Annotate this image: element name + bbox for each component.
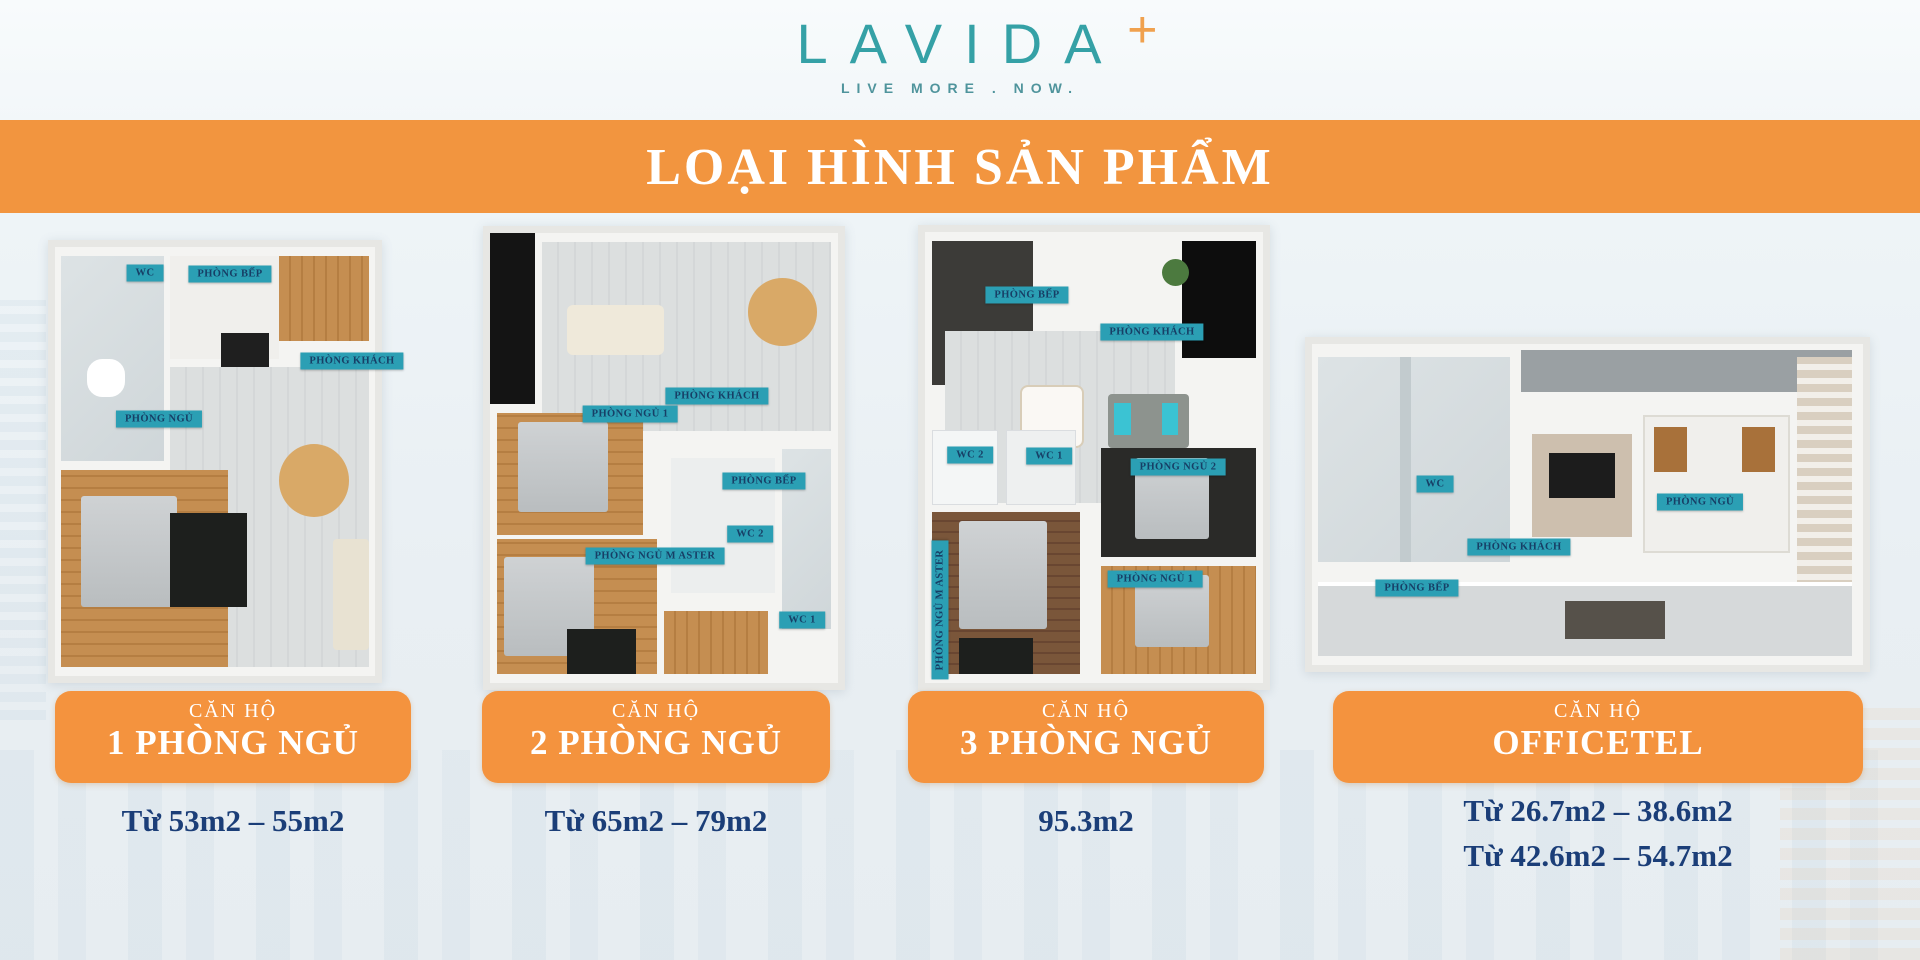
room-label-bedroom: PHÒNG NGỦ <box>1657 494 1743 511</box>
dark-wall <box>490 233 535 404</box>
city-watermark-left <box>0 300 46 720</box>
plant <box>1162 259 1189 286</box>
gray-band <box>1521 350 1852 392</box>
dining-table <box>1020 385 1085 448</box>
card-category: CĂN HỘ <box>1333 700 1863 723</box>
rug <box>170 513 247 607</box>
sofa <box>567 305 664 355</box>
master-floor <box>932 512 1081 674</box>
toilet <box>87 359 125 398</box>
kitchen-dark <box>932 241 1033 385</box>
sofa <box>1108 394 1189 448</box>
product-card-1-bedroom: CĂN HỘ 1 PHÒNG NGỦ <box>55 691 411 783</box>
bed <box>81 496 177 608</box>
room-label-wc1: WC 1 <box>1026 448 1072 465</box>
desk <box>1532 434 1631 537</box>
area-range-line2: Từ 42.6m2 – 54.7m2 <box>1333 833 1863 878</box>
teal-cushion-2 <box>1162 403 1179 435</box>
room-label-bedroom1: PHÒNG NGỦ 1 <box>583 406 678 423</box>
monitor <box>1549 453 1615 498</box>
dining-table <box>279 444 349 517</box>
pillow-2 <box>1742 427 1775 472</box>
room-label-master: PHÒNG NGỦ M ASTER <box>586 548 725 565</box>
wc-room <box>1318 357 1511 562</box>
bed <box>1643 415 1790 554</box>
room-label-wc2: WC 2 <box>727 526 773 543</box>
card-category: CĂN HỘ <box>55 700 411 723</box>
room-label-kitchen: PHÒNG BẾP <box>985 287 1068 304</box>
card-title: 1 PHÒNG NGỦ <box>55 723 411 763</box>
rug-master <box>959 638 1033 674</box>
area-range: 95.3m2 <box>908 798 1264 843</box>
room-label-bedroom: PHÒNG NGỦ <box>116 411 202 428</box>
room-label-wc: WC <box>127 265 164 282</box>
card-title: OFFICETEL <box>1333 723 1863 763</box>
room-label-kitchen: PHÒNG BẾP <box>722 473 805 490</box>
room-label-wc: WC <box>1417 476 1454 493</box>
page: LAVIDA + LIVE MORE . NOW. LOẠI HÌNH SẢN … <box>0 0 1920 960</box>
product-card-officetel: CĂN HỘ OFFICETEL <box>1333 691 1863 783</box>
rug <box>567 629 637 674</box>
brand-logo: LAVIDA + LIVE MORE . NOW. <box>0 16 1920 96</box>
area-range: Từ 53m2 – 55m2 <box>55 798 411 843</box>
bedroom-floor <box>61 470 227 667</box>
room-label-wc1: WC 1 <box>779 612 825 629</box>
room-label-living: PHÒNG KHÁCH <box>1100 324 1203 341</box>
room-label-living: PHÒNG KHÁCH <box>665 388 768 405</box>
brand-wordmark: LAVIDA + <box>796 16 1123 72</box>
dining-table <box>748 278 818 346</box>
glass-partition <box>1400 357 1411 562</box>
floor-plan-1-bedroom: WC PHÒNG BẾP PHÒNG KHÁCH PHÒNG NGỦ <box>48 240 382 683</box>
bathroom-zone <box>61 256 163 462</box>
wc2-room <box>932 430 998 504</box>
cabinet-wood <box>279 256 369 342</box>
bed-master <box>959 521 1047 629</box>
teal-cushion-1 <box>1114 403 1131 435</box>
floor-plan-officetel: WC PHÒNG NGỦ PHÒNG KHÁCH PHÒNG BẾP <box>1305 337 1870 672</box>
pillow-1 <box>1654 427 1687 472</box>
card-category: CĂN HỘ <box>482 700 830 723</box>
bed1 <box>518 422 608 512</box>
sofa <box>333 539 368 651</box>
cooktop <box>221 333 269 372</box>
room-label-master: PHÒNG NGỦ M ASTER <box>932 541 949 680</box>
room-label-wc2: WC 2 <box>947 447 993 464</box>
plus-icon: + <box>1127 4 1157 56</box>
bookshelf <box>1565 601 1664 640</box>
wardrobe <box>1797 357 1852 588</box>
brand-text: LAVIDA <box>796 12 1123 75</box>
card-title: 3 PHÒNG NGỦ <box>908 723 1264 763</box>
bed-master <box>504 557 594 656</box>
product-card-2-bedroom: CĂN HỘ 2 PHÒNG NGỦ <box>482 691 830 783</box>
wc1-room <box>1006 430 1076 504</box>
bedroom1-floor <box>497 413 643 535</box>
area-range: Từ 65m2 – 79m2 <box>482 798 830 843</box>
product-card-3-bedroom: CĂN HỘ 3 PHÒNG NGỦ <box>908 691 1264 783</box>
brand-tagline: LIVE MORE . NOW. <box>0 80 1920 96</box>
card-title: 2 PHÒNG NGỦ <box>482 723 830 763</box>
section-title: LOẠI HÌNH SẢN PHẨM <box>0 120 1920 215</box>
floor-plan-3-bedroom: PHÒNG BẾP PHÒNG KHÁCH WC 2 WC 1 PHÒNG NG… <box>918 225 1270 690</box>
room-label-living: PHÒNG KHÁCH <box>1467 539 1570 556</box>
area-range-group: Từ 26.7m2 – 38.6m2 Từ 42.6m2 – 54.7m2 <box>1333 788 1863 878</box>
section-banner: LOẠI HÌNH SẢN PHẨM <box>0 120 1920 213</box>
floor-plan-2-bedroom: PHÒNG KHÁCH PHÒNG NGỦ 1 PHÒNG BẾP WC 2 P… <box>483 226 845 690</box>
room-label-living: PHÒNG KHÁCH <box>300 353 403 370</box>
card-category: CĂN HỘ <box>908 700 1264 723</box>
room-label-bedroom2: PHÒNG NGỦ 2 <box>1131 459 1226 476</box>
room-label-kitchen: PHÒNG BẾP <box>1375 580 1458 597</box>
room-label-bedroom1: PHÒNG NGỦ 1 <box>1108 571 1203 588</box>
area-range-line1: Từ 26.7m2 – 38.6m2 <box>1333 788 1863 833</box>
dark-block <box>1182 241 1256 358</box>
bath-wood-floor <box>664 611 768 674</box>
living-floor <box>945 331 1175 502</box>
room-label-kitchen: PHÒNG BẾP <box>188 266 271 283</box>
